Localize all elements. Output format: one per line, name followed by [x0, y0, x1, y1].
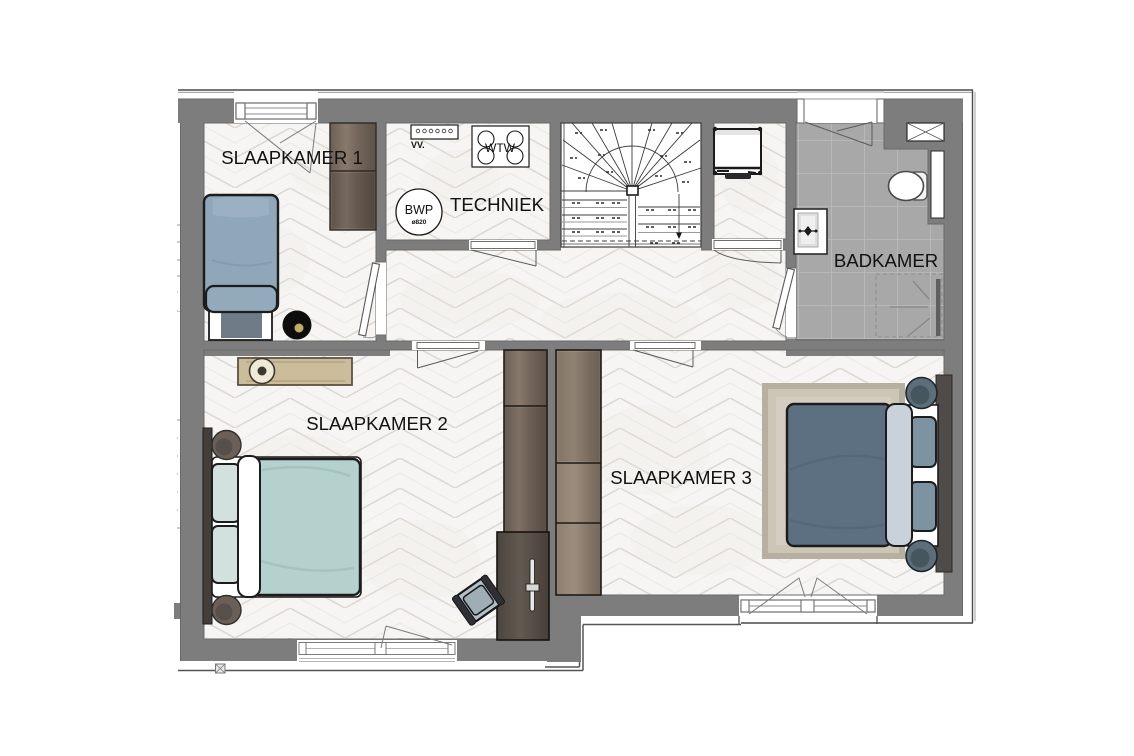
svg-text:VV.: VV.: [411, 140, 425, 150]
svg-text:SLAAPKAMER 2: SLAAPKAMER 2: [306, 413, 448, 434]
svg-text:BADKAMER: BADKAMER: [834, 250, 938, 271]
svg-text:ø820: ø820: [412, 219, 427, 226]
svg-text:WTW: WTW: [485, 141, 516, 155]
svg-text:SLAAPKAMER 3: SLAAPKAMER 3: [610, 467, 752, 488]
svg-text:BWP: BWP: [405, 203, 433, 217]
svg-text:TECHNIEK: TECHNIEK: [450, 194, 545, 215]
svg-text:SLAAPKAMER 1: SLAAPKAMER 1: [221, 147, 363, 168]
